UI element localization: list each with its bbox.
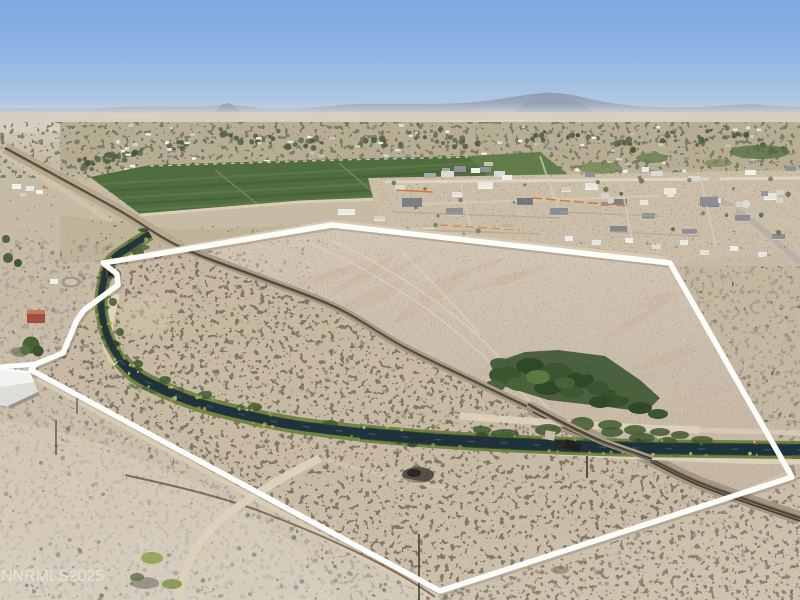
svg-text:NNRMLS2025: NNRMLS2025: [1, 568, 104, 585]
